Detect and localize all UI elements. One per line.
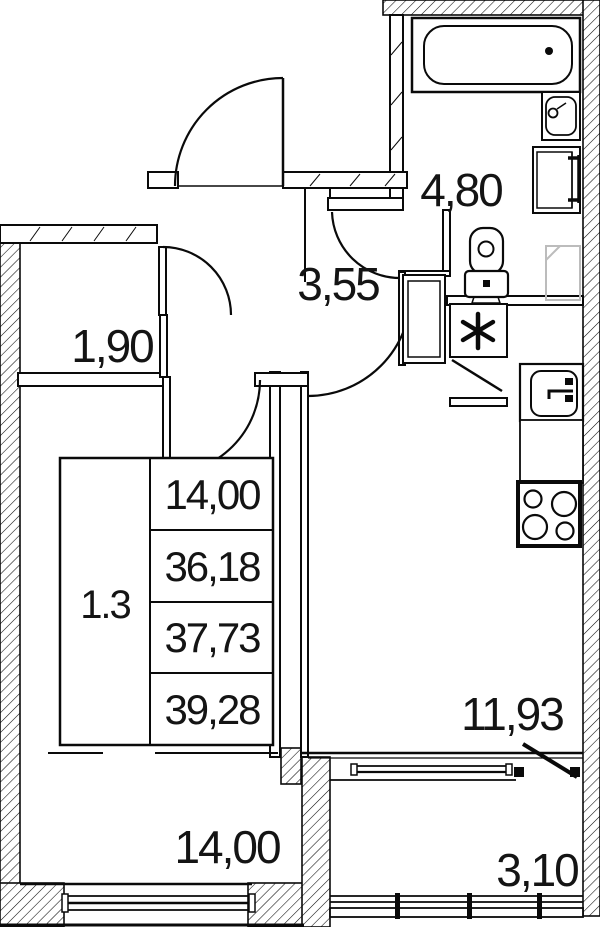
apartment-number: 1.3 [80,583,130,627]
room-label-kitchen: 11,93 [461,688,563,740]
bathroom-wall-step [390,188,403,198]
shaft-hatch [281,748,301,784]
floor-plan: 1.3 14,00 36,18 37,73 39,28 [0,0,600,927]
balcony-glazing [330,893,583,919]
room-label-hallway: 3,55 [297,258,379,310]
top-exterior-wall [383,0,600,15]
entry-wall-right [283,172,407,188]
closet-top-wall [0,225,157,243]
closet-bottom-wall [18,373,167,386]
bathroom-door-wall [328,198,403,210]
cabinet-door-swing [452,360,502,391]
niche-right-wall [443,210,450,276]
stamp-living-area: 14,00 [164,471,260,518]
area-stamp-table: 1.3 14,00 36,18 37,73 39,28 [48,458,278,753]
room-label-bathroom: 4,80 [420,164,502,216]
balcony-pier [302,757,330,927]
bathtub-icon [412,18,580,92]
entry-door [175,78,283,186]
bottom-window-pier [248,883,304,927]
kitchen-counter [520,420,583,483]
stamp-area: 36,18 [164,543,260,590]
room-label-balcony: 3,10 [496,844,578,896]
washing-machine-icon [403,275,445,363]
closet-door [159,247,231,315]
stove-icon [518,482,580,546]
stamp-total-with-balcony: 39,28 [164,686,260,733]
closet-right-stub [160,315,167,377]
hall-bottom-wall-segment [255,373,308,386]
balcony-door [514,744,580,777]
left-exterior-wall [0,225,20,927]
bottom-left-wall-block [0,883,64,927]
vanity-unit-icon [533,147,580,213]
fridge-outline-icon [546,246,580,300]
room-label-living: 14,00 [174,821,280,873]
stamp-total-area: 37,73 [164,614,260,661]
washing-machine-place [450,304,507,406]
bathtub-drain [545,47,553,55]
kitchen-sink-icon [520,364,583,421]
right-exterior-wall [583,0,600,916]
washbasin-icon [542,92,580,140]
entry-wall-left [148,172,178,188]
toilet-icon [465,228,508,303]
kitchen-left-wall [301,372,308,757]
room-label-closet: 1,90 [71,320,153,372]
